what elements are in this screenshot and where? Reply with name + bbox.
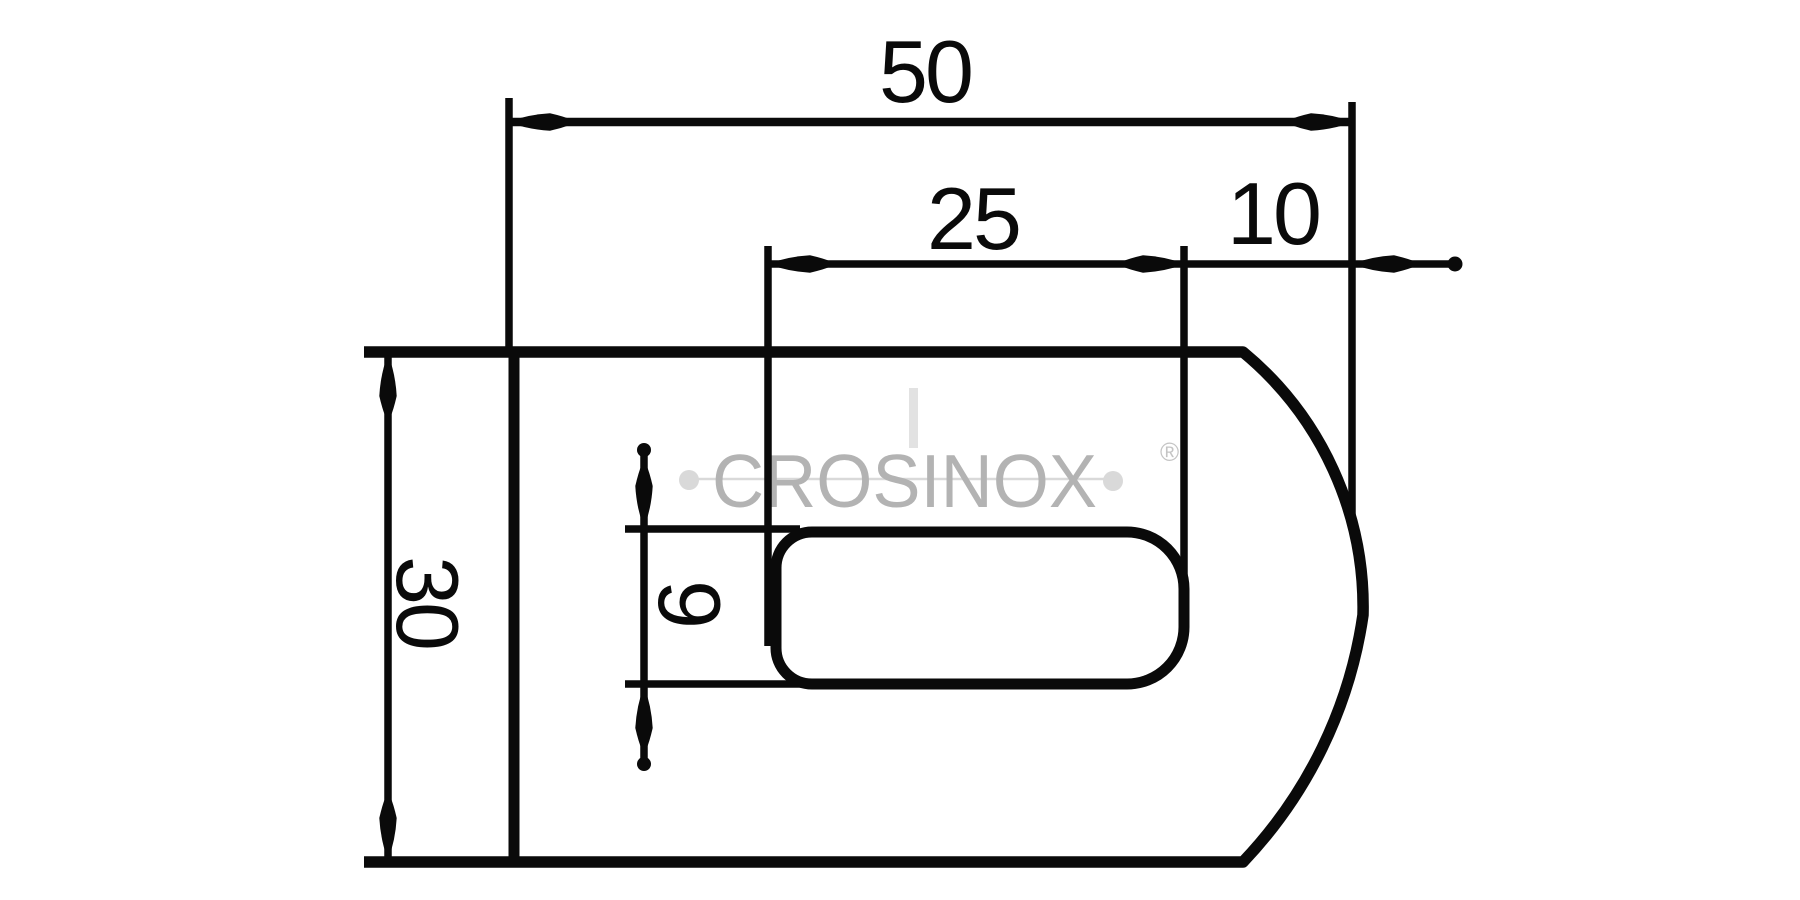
svg-text:30: 30	[378, 556, 477, 648]
svg-text:10: 10	[1227, 164, 1319, 263]
svg-text:50: 50	[879, 22, 971, 121]
svg-text:9: 9	[640, 580, 739, 626]
svg-text:®: ®	[1160, 437, 1179, 467]
svg-text:25: 25	[927, 169, 1019, 268]
